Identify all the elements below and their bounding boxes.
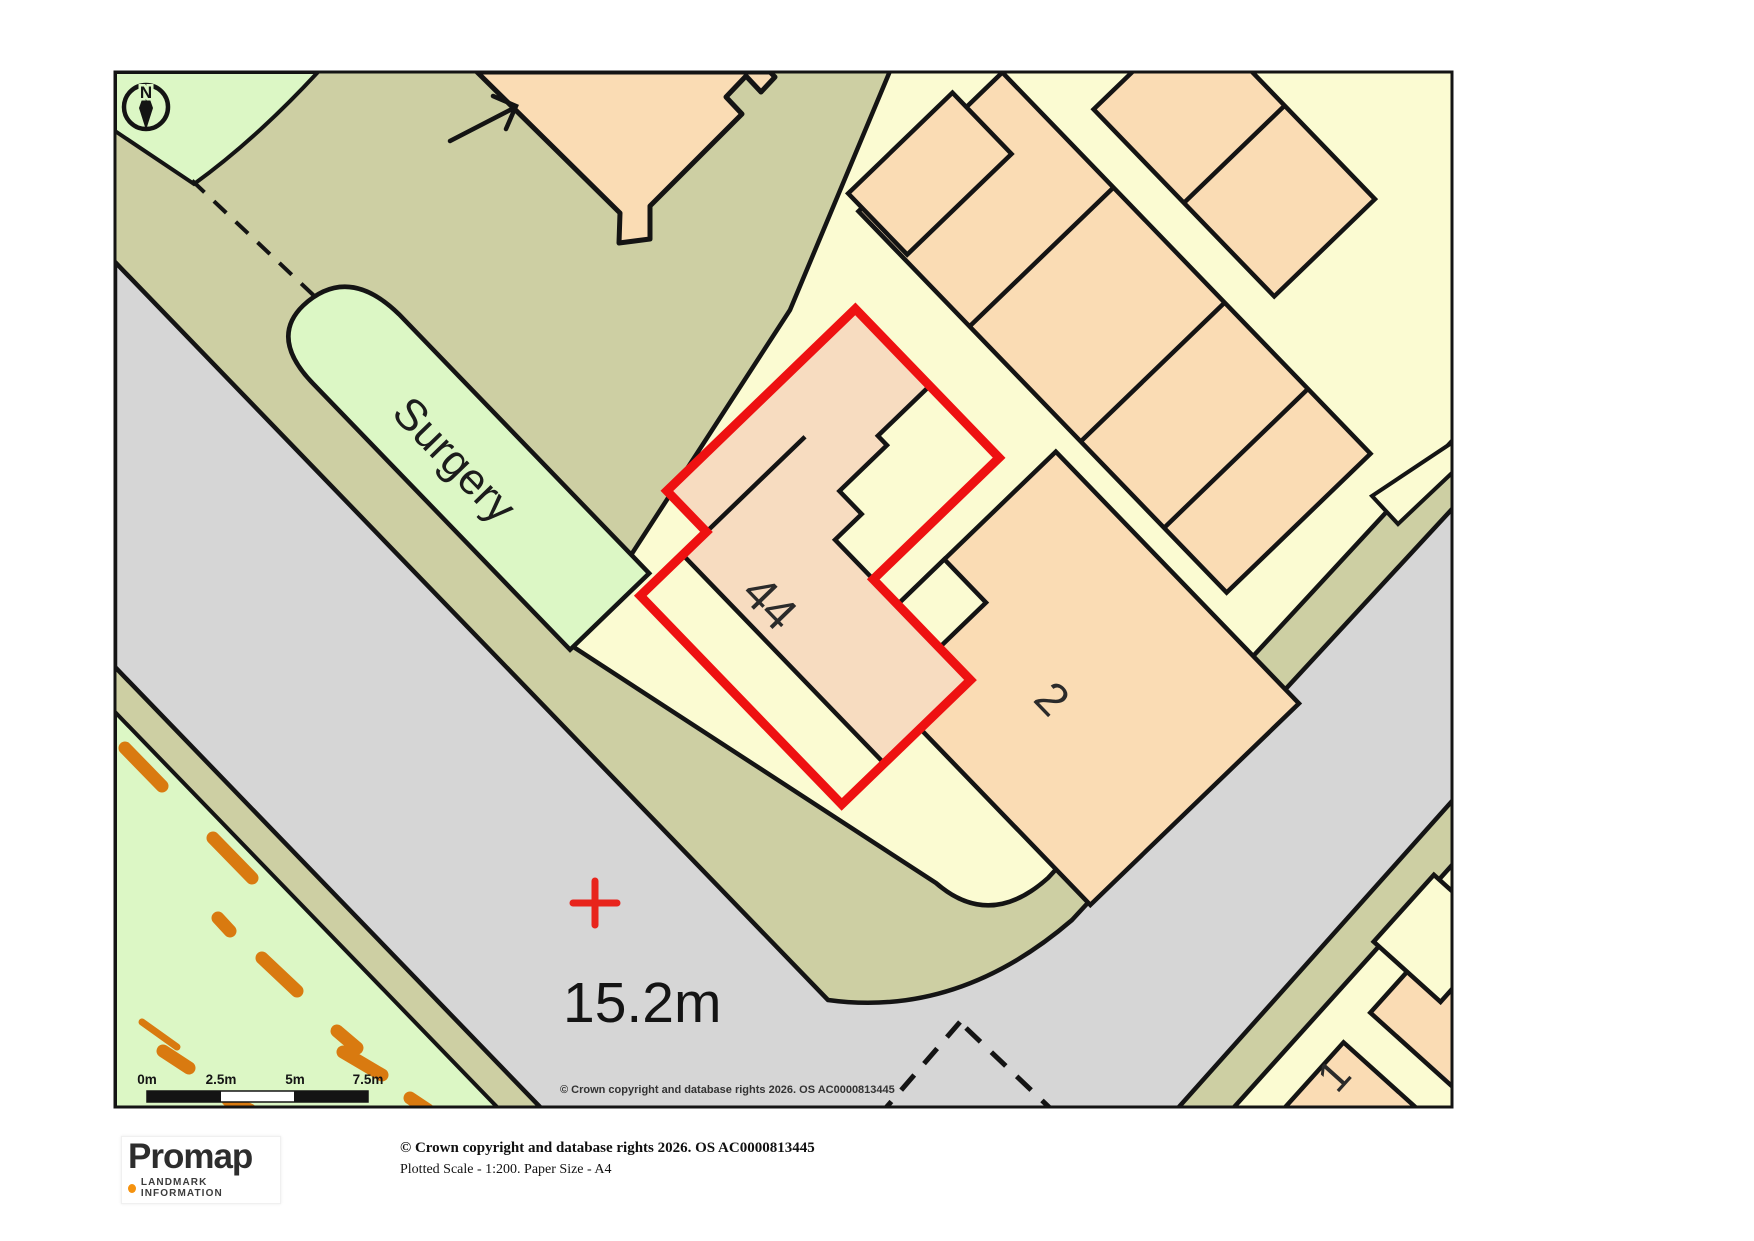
footer-plot-info: Plotted Scale - 1:200. Paper Size - A4 xyxy=(400,1162,815,1178)
footer: Promap LANDMARK INFORMATION © Crown copy… xyxy=(0,1128,1754,1238)
map-copyright: © Crown copyright and database rights 20… xyxy=(560,1084,895,1096)
plotted-map-page: 1 xyxy=(0,0,1754,1241)
brand-name: Promap xyxy=(128,1139,274,1175)
scale-tick-1: 2.5m xyxy=(206,1072,237,1087)
north-label: N xyxy=(140,83,152,102)
brand-tagline: LANDMARK INFORMATION xyxy=(128,1177,274,1199)
orange-dot-icon xyxy=(128,1184,136,1193)
spot-height-label: 15.2m xyxy=(563,971,721,1035)
promap-logo: Promap LANDMARK INFORMATION xyxy=(121,1136,281,1204)
tagline-text: LANDMARK INFORMATION xyxy=(141,1177,274,1199)
footer-text: © Crown copyright and database rights 20… xyxy=(400,1140,815,1178)
map-canvas: 1 xyxy=(0,0,1754,1120)
scale-tick-3: 7.5m xyxy=(353,1072,384,1087)
scale-tick-2: 5m xyxy=(285,1072,305,1087)
scale-tick-0: 0m xyxy=(137,1072,157,1087)
footer-copyright: © Crown copyright and database rights 20… xyxy=(400,1140,815,1157)
map-svg: 1 xyxy=(0,0,1754,1120)
